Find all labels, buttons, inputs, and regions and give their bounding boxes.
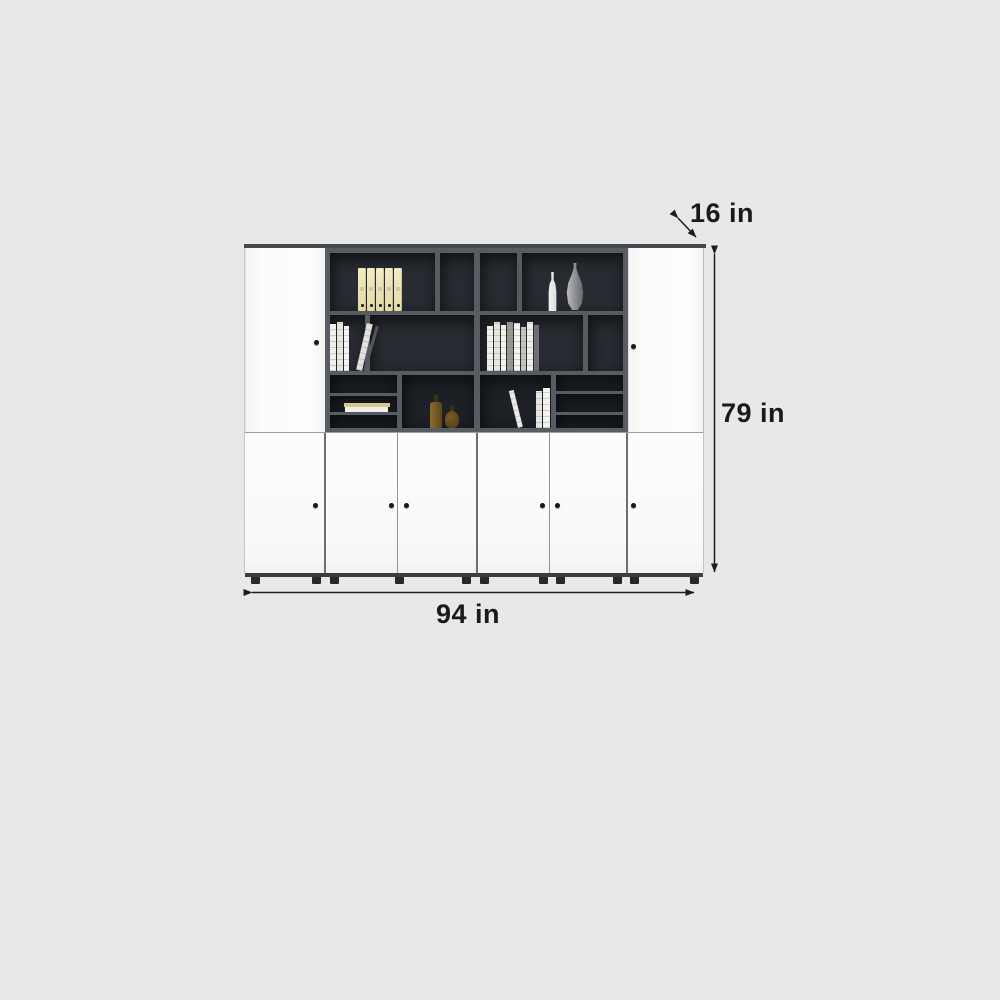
shelf-cell (588, 315, 623, 371)
upper-right-door (628, 248, 704, 433)
amber-bottle-round (445, 405, 459, 428)
cabinet-foot (251, 577, 260, 584)
book-spine (494, 322, 500, 371)
shelf-cell (440, 253, 474, 311)
door-divider (549, 433, 550, 573)
book-spine (514, 323, 520, 371)
cabinet-foot (630, 577, 639, 584)
binder (376, 268, 384, 311)
binder (385, 268, 393, 311)
lower-door-knob (555, 503, 560, 508)
book-spine (527, 322, 533, 371)
door-divider (397, 433, 398, 573)
cabinet-foot (330, 577, 339, 584)
shelf-cell (556, 375, 623, 391)
book-spine (534, 325, 539, 371)
shelf-cell (556, 394, 623, 412)
height-dimension-label: 79 in (721, 400, 785, 427)
cabinet-foot (395, 577, 404, 584)
cabinet-foot (539, 577, 548, 584)
lower-door-knob (540, 503, 545, 508)
lower-door-knob (631, 503, 636, 508)
book-spine (536, 391, 542, 428)
width-dimension-label: 94 in (436, 601, 500, 628)
book-row (487, 322, 541, 371)
door-divider (626, 433, 628, 573)
book-row (330, 322, 366, 371)
door-divider (476, 433, 478, 573)
cabinet-foot (480, 577, 489, 584)
amber-bottle-tall (430, 395, 442, 428)
door-divider (324, 433, 326, 573)
shelf-cell (480, 253, 517, 311)
book-spine (337, 322, 343, 371)
lower-door-knob (404, 503, 409, 508)
cabinet-foot (613, 577, 622, 584)
upper-right-door-knob (631, 344, 636, 349)
shelf-cell (330, 415, 397, 428)
book-spine (330, 324, 336, 371)
bottle-body (430, 402, 442, 428)
binder-row (358, 268, 402, 311)
book-spine (501, 325, 506, 371)
book-spine (487, 326, 493, 371)
cabinet-foot (312, 577, 321, 584)
cabinet-foot (556, 577, 565, 584)
product-dimension-diagram: 16 in 79 in 94 in (0, 0, 1000, 1000)
cabinet-foot (690, 577, 699, 584)
flat-book (345, 407, 388, 412)
bottle-body (445, 411, 459, 428)
book-spine (344, 326, 349, 371)
lower-door-knob (313, 503, 318, 508)
cabinet-foot (462, 577, 471, 584)
flat-book-stack (344, 403, 390, 412)
book-row (518, 388, 550, 428)
shelf-cell (556, 415, 623, 428)
lower-door-knob (389, 503, 394, 508)
binder (367, 268, 375, 311)
book-spine (521, 327, 526, 371)
shelf-cell (370, 315, 474, 371)
open-shelving-unit (325, 248, 628, 433)
book-spine (543, 388, 550, 428)
binder (394, 268, 402, 311)
binder (358, 268, 366, 311)
depth-dimension-label: 16 in (690, 200, 754, 227)
shelf-cell (330, 375, 397, 393)
book-spine (507, 322, 513, 371)
upper-left-door-knob (314, 340, 319, 345)
